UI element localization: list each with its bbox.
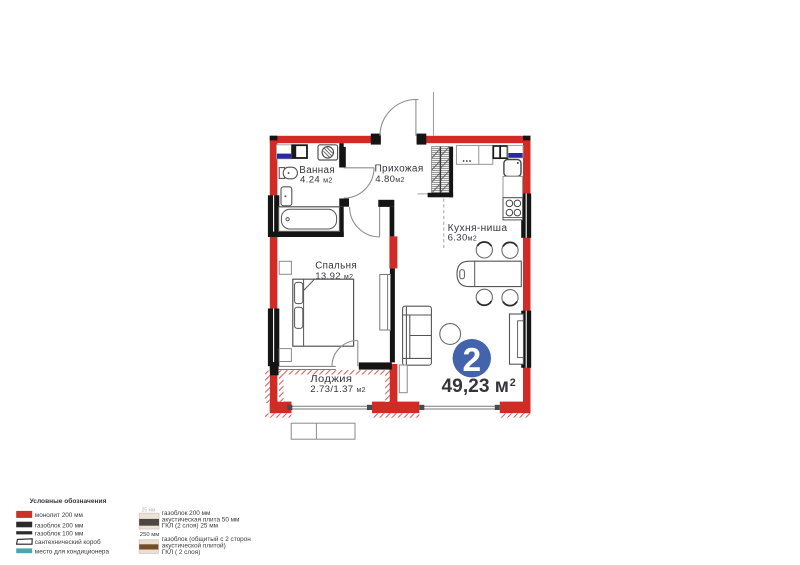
svg-text:4.24 м2: 4.24 м2 xyxy=(300,175,333,186)
svg-text:2: 2 xyxy=(462,342,481,379)
svg-text:Прихожая: Прихожая xyxy=(375,163,424,174)
svg-text:Спальня: Спальня xyxy=(315,260,357,271)
svg-text:ГКЛ ( 2 слоя): ГКЛ ( 2 слоя) xyxy=(162,549,201,556)
svg-text:газоблок 200 мм: газоблок 200 мм xyxy=(35,521,84,529)
svg-text:газоблок 100 мм: газоблок 100 мм xyxy=(35,530,84,538)
svg-text:ГКЛ (2 слоя) 25 мм: ГКЛ (2 слоя) 25 мм xyxy=(162,523,218,530)
svg-text:место для кондиционера: место для кондиционера xyxy=(35,548,110,555)
svg-text:25 мм: 25 мм xyxy=(142,507,156,513)
svg-text:250 мм: 250 мм xyxy=(140,532,160,538)
svg-text:Условные обозначения: Условные обозначения xyxy=(30,497,107,505)
svg-text:49,23 м: 49,23 м xyxy=(442,375,510,397)
svg-text:монолит 200 мм: монолит 200 мм xyxy=(35,512,83,519)
svg-text:сантехнический короб: сантехнический короб xyxy=(35,538,101,546)
svg-text:2: 2 xyxy=(510,377,516,389)
